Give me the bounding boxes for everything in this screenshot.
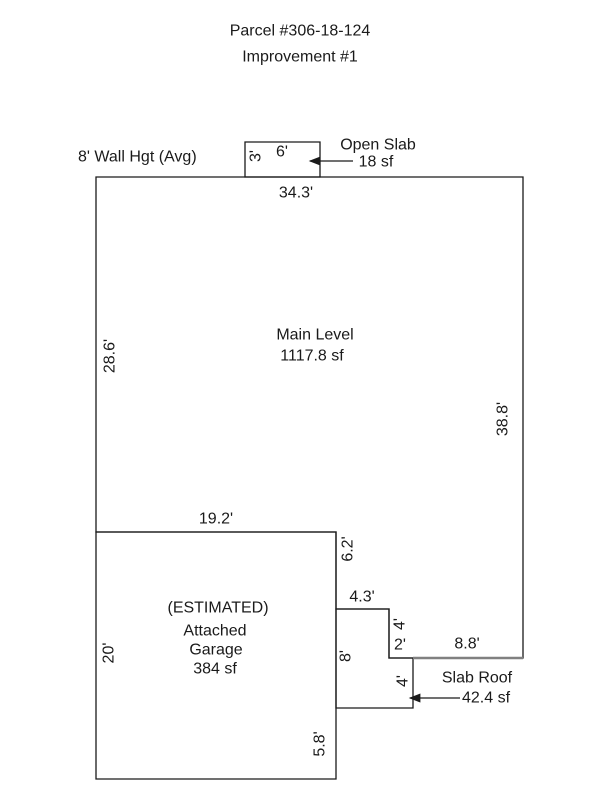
open-slab-width-dim: 6' (276, 144, 288, 161)
main-level-name: Main Level (276, 327, 353, 344)
main-level-area: 1117.8 sf (280, 348, 344, 365)
garage-area: 384 sf (193, 661, 237, 678)
garage-name-line1: Attached (183, 623, 246, 640)
slab-roof-name: Slab Roof (442, 670, 513, 687)
notch-bottom-dim: 2' (394, 637, 406, 654)
main-right-dim: 38.8' (495, 402, 512, 436)
slab-roof-area: 42.4 sf (462, 690, 511, 707)
garage-estimated-label: (ESTIMATED) (167, 600, 268, 617)
main-top-dim: 34.3' (279, 185, 313, 202)
main-level-outline (96, 177, 523, 658)
main-left-dim: 28.6' (102, 339, 119, 373)
garage-right-mid-dim: 8' (338, 650, 355, 662)
slab-roof-top-dim: 4.3' (349, 589, 374, 606)
slab-roof-right-upper-dim: 4' (392, 618, 409, 630)
open-slab-name: Open Slab (340, 137, 416, 154)
page-title: Parcel #306-18-124 (230, 23, 371, 40)
open-slab-area: 18 sf (359, 154, 394, 171)
garage-name-line2: Garage (189, 642, 242, 659)
garage-right-lower-dim: 5.8' (312, 731, 329, 756)
garage-right-upper-dim: 6.2' (340, 536, 357, 561)
slab-roof-right-lower-dim: 4' (395, 675, 412, 687)
main-bottom-dim: 8.8' (454, 636, 479, 653)
open-slab-height-dim: 3' (248, 150, 265, 162)
improvement-subtitle: Improvement #1 (242, 49, 358, 66)
garage-top-dim: 19.2' (199, 511, 233, 528)
garage-left-dim: 20' (101, 643, 118, 664)
parcel-sketch-page: Parcel #306-18-124 Improvement #1 8' Wal… (0, 0, 600, 800)
wall-height-label: 8' Wall Hgt (Avg) (78, 149, 197, 166)
improvement-sketch: Parcel #306-18-124 Improvement #1 8' Wal… (0, 0, 600, 800)
